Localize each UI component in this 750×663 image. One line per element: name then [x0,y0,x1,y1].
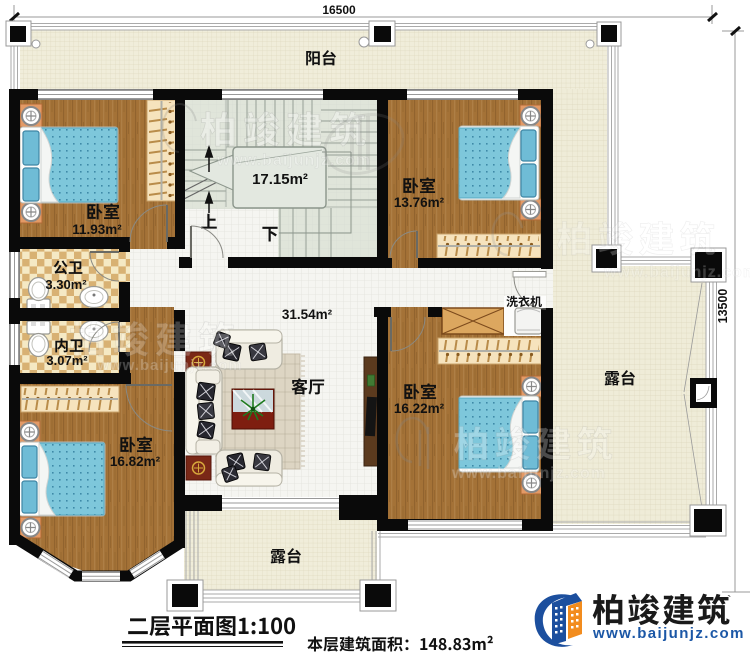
svg-text:16500: 16500 [322,3,356,17]
svg-text:13500: 13500 [716,289,730,324]
svg-text:3.07m²: 3.07m² [46,353,88,368]
svg-text:`: ` [727,592,732,608]
svg-text:16.22m²: 16.22m² [394,401,445,416]
svg-text:16.82m²: 16.82m² [110,454,161,469]
svg-text:17.15m²: 17.15m² [252,171,308,188]
svg-text:11.93m²: 11.93m² [72,222,122,237]
svg-text:3.30m²: 3.30m² [45,277,87,292]
svg-text:www.baijunjz.com: www.baijunjz.com [451,465,606,482]
svg-text:www.baijunjz.com: www.baijunjz.com [216,152,371,169]
svg-text:www.baijunjz.com: www.baijunjz.com [603,264,750,281]
svg-text:31.54m²: 31.54m² [282,307,333,322]
svg-text:13.76m²: 13.76m² [394,195,445,210]
svg-text:www.baijunjz.com: www.baijunjz.com [96,357,242,374]
svg-text:www.baijunjz.com: www.baijunjz.com [592,625,745,642]
